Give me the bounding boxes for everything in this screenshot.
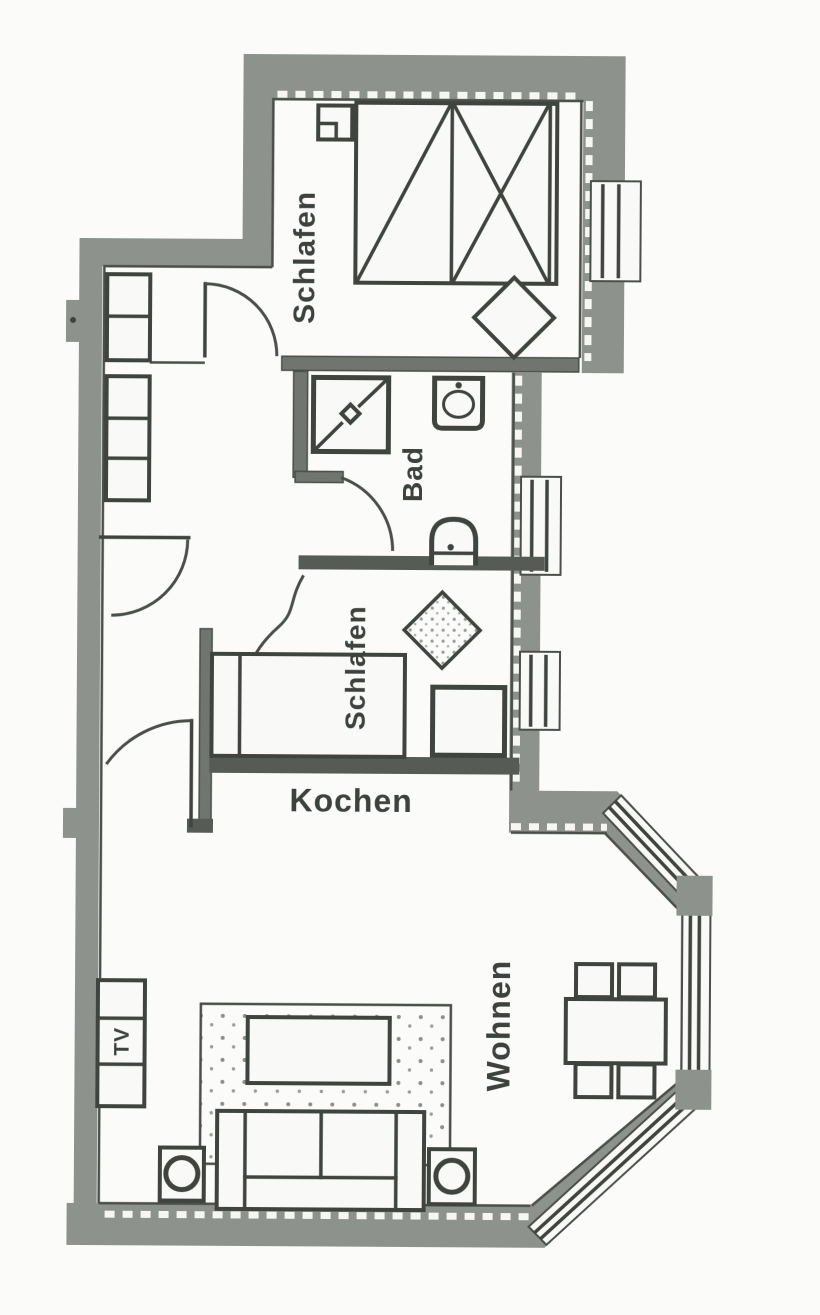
- wardrobe-lower: [106, 376, 150, 500]
- door-leaf-living: [191, 721, 192, 826]
- bed-pillow-line: [239, 654, 240, 756]
- window-glazing-line: [540, 1091, 701, 1240]
- hatch-line: [588, 101, 590, 361]
- dining-chair: [576, 964, 612, 997]
- window-bay-east: [681, 900, 710, 1086]
- bed-center-line: [451, 103, 452, 283]
- room-label-living: Wohnen: [480, 960, 517, 1092]
- door-arc-bath: [341, 478, 393, 551]
- window-glazing-line: [698, 904, 699, 1082]
- wall-bath-south: [299, 555, 545, 571]
- wall-stub-mark: [70, 317, 76, 323]
- bay-corner-pier: [676, 876, 712, 916]
- dining-chair: [575, 1064, 611, 1097]
- window-glazing-line: [534, 1085, 695, 1234]
- room-label-bedroom-top: Schlafen: [288, 191, 322, 324]
- door-leaf-hall-closet: [101, 537, 189, 538]
- dining-chair: [618, 1064, 654, 1097]
- double-bed: [355, 103, 557, 284]
- window-glazing-line: [547, 480, 548, 572]
- window-glazing-line: [689, 904, 690, 1082]
- hatch-line: [277, 94, 581, 96]
- door-arc-hall-closet: [111, 539, 187, 615]
- wall-bath-west: [293, 371, 308, 477]
- floor-lamp-diamond: [474, 277, 554, 357]
- bed-headboard-line: [549, 104, 550, 284]
- door-arc-living: [106, 720, 191, 765]
- window-bedroom-east: [590, 181, 641, 281]
- door-arc-bedroom-top: [205, 284, 277, 356]
- wall-face-line: [511, 833, 607, 834]
- bedroom-top-furniture: [317, 102, 558, 357]
- hatch-line: [516, 376, 519, 789]
- room-label-bath: Bad: [397, 446, 428, 502]
- wall-hall-north: [79, 238, 272, 267]
- table-diamond: [404, 592, 480, 668]
- room-label-bedroom-alcove: Schlafen: [340, 605, 372, 730]
- dining-table: [566, 999, 666, 1064]
- dining-chair: [619, 964, 655, 997]
- wall-top-bedroom-west: [242, 54, 273, 267]
- wall-bath-door-stub: [295, 471, 343, 482]
- wall-bedroom-bath-divider: [282, 356, 579, 372]
- sofa-armrest-line: [245, 1111, 246, 1209]
- window-alcove-east: [520, 652, 560, 730]
- window-glazing-line: [602, 184, 603, 278]
- wall-face-line: [580, 101, 582, 358]
- window-glazing-line: [618, 184, 619, 278]
- toilet-flush-dot: [447, 544, 453, 550]
- sofa-armrest-line: [396, 1112, 397, 1210]
- hall-wardrobes: [106, 274, 150, 500]
- toilet: [432, 519, 476, 565]
- wall-stub-west-lower: [63, 808, 77, 838]
- kitchen-unit: [432, 687, 504, 755]
- washbasin-faucet: [455, 382, 461, 388]
- label-tv: TV: [111, 1027, 134, 1056]
- scanned-floor-plan-page: Schlafen Bad Schlafen Kochen Wohnen TV: [0, 0, 820, 1315]
- room-label-kitchen: Kochen: [289, 782, 413, 819]
- coffee-table: [247, 1017, 389, 1084]
- bay-corner-pier: [675, 1070, 711, 1110]
- floor-plan: Schlafen Bad Schlafen Kochen Wohnen TV: [0, 0, 820, 1315]
